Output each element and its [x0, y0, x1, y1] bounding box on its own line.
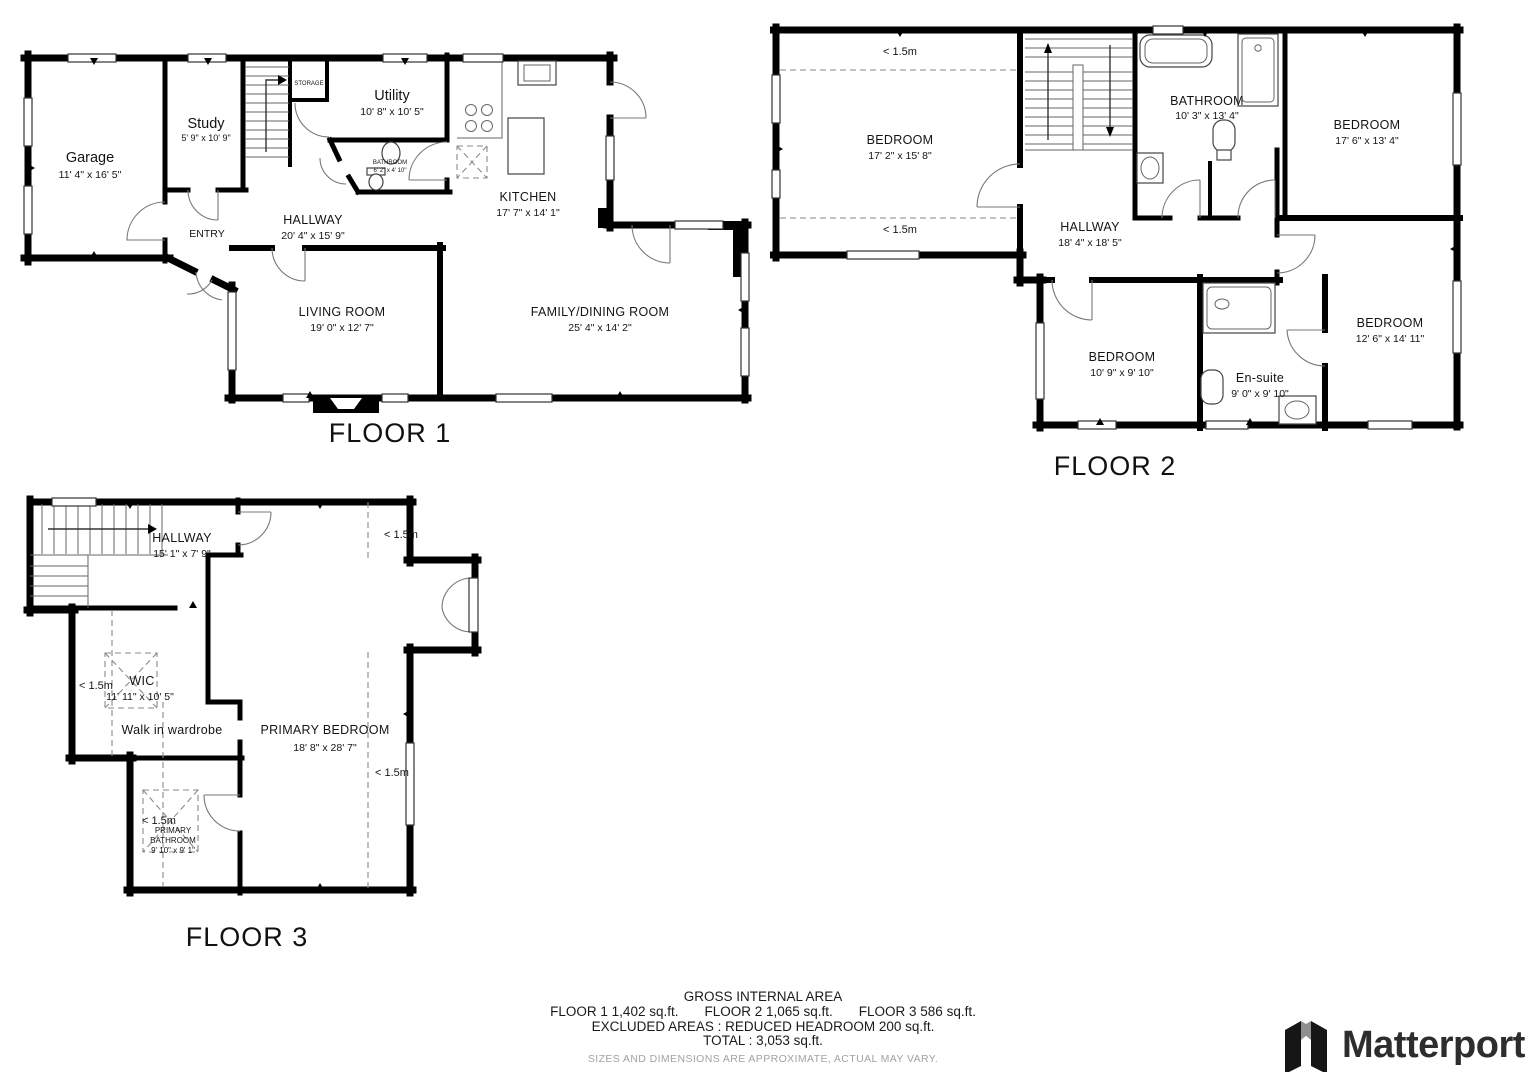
floor-1-area: FLOOR 1 1,402 sq.ft.	[550, 1004, 678, 1019]
room-label-study: Study	[187, 116, 225, 132]
floor-1-plan: Garage 11' 4" x 16' 5" Study 5' 9" x 10'…	[10, 40, 770, 460]
room-label-garage: Garage	[66, 150, 114, 166]
floor-2-plan: < 1.5m BEDROOM 17' 2" x 15' 8" < 1.5m BA…	[770, 15, 1470, 455]
floorplan-canvas: Garage 11' 4" x 16' 5" Study 5' 9" x 10'…	[0, 0, 1527, 1080]
windows	[52, 498, 478, 825]
headroom-label-top: < 1.5m	[384, 529, 418, 541]
room-dims-study: 5' 9" x 10' 9"	[181, 133, 230, 143]
room-dims-hallway: 18' 4" x 18' 5"	[1058, 237, 1122, 249]
room-label-wic: WIC	[129, 674, 154, 688]
wic-caption: Walk in wardrobe	[122, 723, 223, 737]
room-label-bedroom4: BEDROOM	[1357, 316, 1424, 330]
room-dims-bedroom2: 17' 6" x 13' 4"	[1335, 135, 1399, 147]
room-dims-bathroom: 6' 2" x 4' 10"	[374, 168, 407, 174]
headroom-label-top: < 1.5m	[883, 46, 917, 58]
room-label-bathroom: BATHROOM	[1170, 94, 1244, 108]
room-label-storage: STORAGE	[294, 81, 323, 87]
floor-2-area: FLOOR 2 1,065 sq.ft.	[704, 1004, 832, 1019]
excluded-areas: EXCLUDED AREAS : REDUCED HEADROOM 200 sq…	[380, 1020, 1146, 1035]
room-label-bedroom3: BEDROOM	[1089, 350, 1156, 364]
headroom-label-right: < 1.5m	[375, 767, 409, 779]
room-label-hallway: HALLWAY	[283, 213, 343, 227]
area-summary-floors: FLOOR 1 1,402 sq.ft.FLOOR 2 1,065 sq.ft.…	[380, 1005, 1146, 1020]
room-dims-primary-bedroom: 18' 8" x 28' 7"	[293, 742, 357, 754]
room-label-bathroom: BATHROOM	[373, 160, 407, 166]
room-dims-utility: 10' 8" x 10' 5"	[360, 106, 424, 118]
area-summary: GROSS INTERNAL AREA FLOOR 1 1,402 sq.ft.…	[380, 990, 1146, 1067]
matterport-brand: Matterport	[1281, 1018, 1525, 1072]
floor-1-title: FLOOR 1	[280, 418, 500, 449]
bathroom-fixtures	[1137, 34, 1278, 183]
floor-3-title: FLOOR 3	[137, 922, 357, 953]
room-label-entry: ENTRY	[189, 228, 224, 240]
matterport-logo-icon	[1281, 1018, 1331, 1072]
floor-3-plan: HALLWAY 15' 1" x 7' 9" < 1.5m < 1.5m WIC…	[20, 490, 490, 905]
headroom-label-bottom: < 1.5m	[883, 224, 917, 236]
staircase	[30, 504, 168, 608]
room-label-ensuite: En-suite	[1236, 371, 1284, 385]
room-dims-living: 19' 0" x 12' 7"	[310, 322, 374, 334]
door-arcs	[977, 164, 1325, 366]
room-label-living: LIVING ROOM	[299, 305, 386, 319]
kitchen-fixtures	[457, 58, 556, 178]
staircase	[1025, 39, 1133, 150]
bathroom-fixtures	[367, 142, 400, 190]
room-label-family: FAMILY/DINING ROOM	[531, 305, 670, 319]
room-dims-wic: 11' 11" x 10' 5"	[106, 691, 174, 703]
floor-2-title: FLOOR 2	[1005, 451, 1225, 482]
room-dims-family: 25' 4" x 14' 2"	[568, 322, 632, 334]
ensuite-fixtures	[1201, 283, 1316, 424]
room-dims-primary-bathroom: 9' 10" x 9' 1"	[151, 846, 195, 855]
room-dims-ensuite: 9' 0" x 9' 10"	[1231, 388, 1289, 400]
room-label-primary-bathroom-2: BATHROOM	[150, 836, 196, 845]
room-dims-bedroom1: 17' 2" x 15' 8"	[868, 150, 932, 162]
room-label-bedroom1: BEDROOM	[867, 133, 934, 147]
area-summary-title: GROSS INTERNAL AREA	[380, 990, 1146, 1005]
room-label-primary-bedroom: PRIMARY BEDROOM	[260, 723, 389, 737]
room-label-utility: Utility	[374, 88, 410, 104]
room-dims-bedroom4: 12' 6" x 14' 11"	[1356, 333, 1425, 345]
room-dims-bedroom3: 10' 9" x 9' 10"	[1090, 367, 1154, 379]
room-dims-hallway: 20' 4" x 15' 9"	[281, 230, 345, 242]
disclaimer: SIZES AND DIMENSIONS ARE APPROXIMATE, AC…	[380, 1052, 1146, 1067]
room-dims-hallway: 15' 1" x 7' 9"	[153, 548, 211, 560]
room-label-primary-bathroom-1: PRIMARY	[155, 826, 192, 835]
room-label-kitchen: KITCHEN	[500, 190, 557, 204]
room-dims-garage: 11' 4" x 16' 5"	[59, 169, 122, 181]
room-label-bedroom2: BEDROOM	[1334, 118, 1401, 132]
floor-3-area: FLOOR 3 586 sq.ft.	[859, 1004, 976, 1019]
matterport-wordmark: Matterport	[1342, 1024, 1525, 1067]
total-area: TOTAL : 3,053 sq.ft.	[380, 1034, 1146, 1049]
room-label-hallway: HALLWAY	[1060, 220, 1120, 234]
room-dims-kitchen: 17' 7" x 14' 1"	[496, 207, 560, 219]
room-label-hallway: HALLWAY	[152, 531, 212, 545]
room-dims-bathroom: 10' 3" x 13' 4"	[1175, 110, 1239, 122]
